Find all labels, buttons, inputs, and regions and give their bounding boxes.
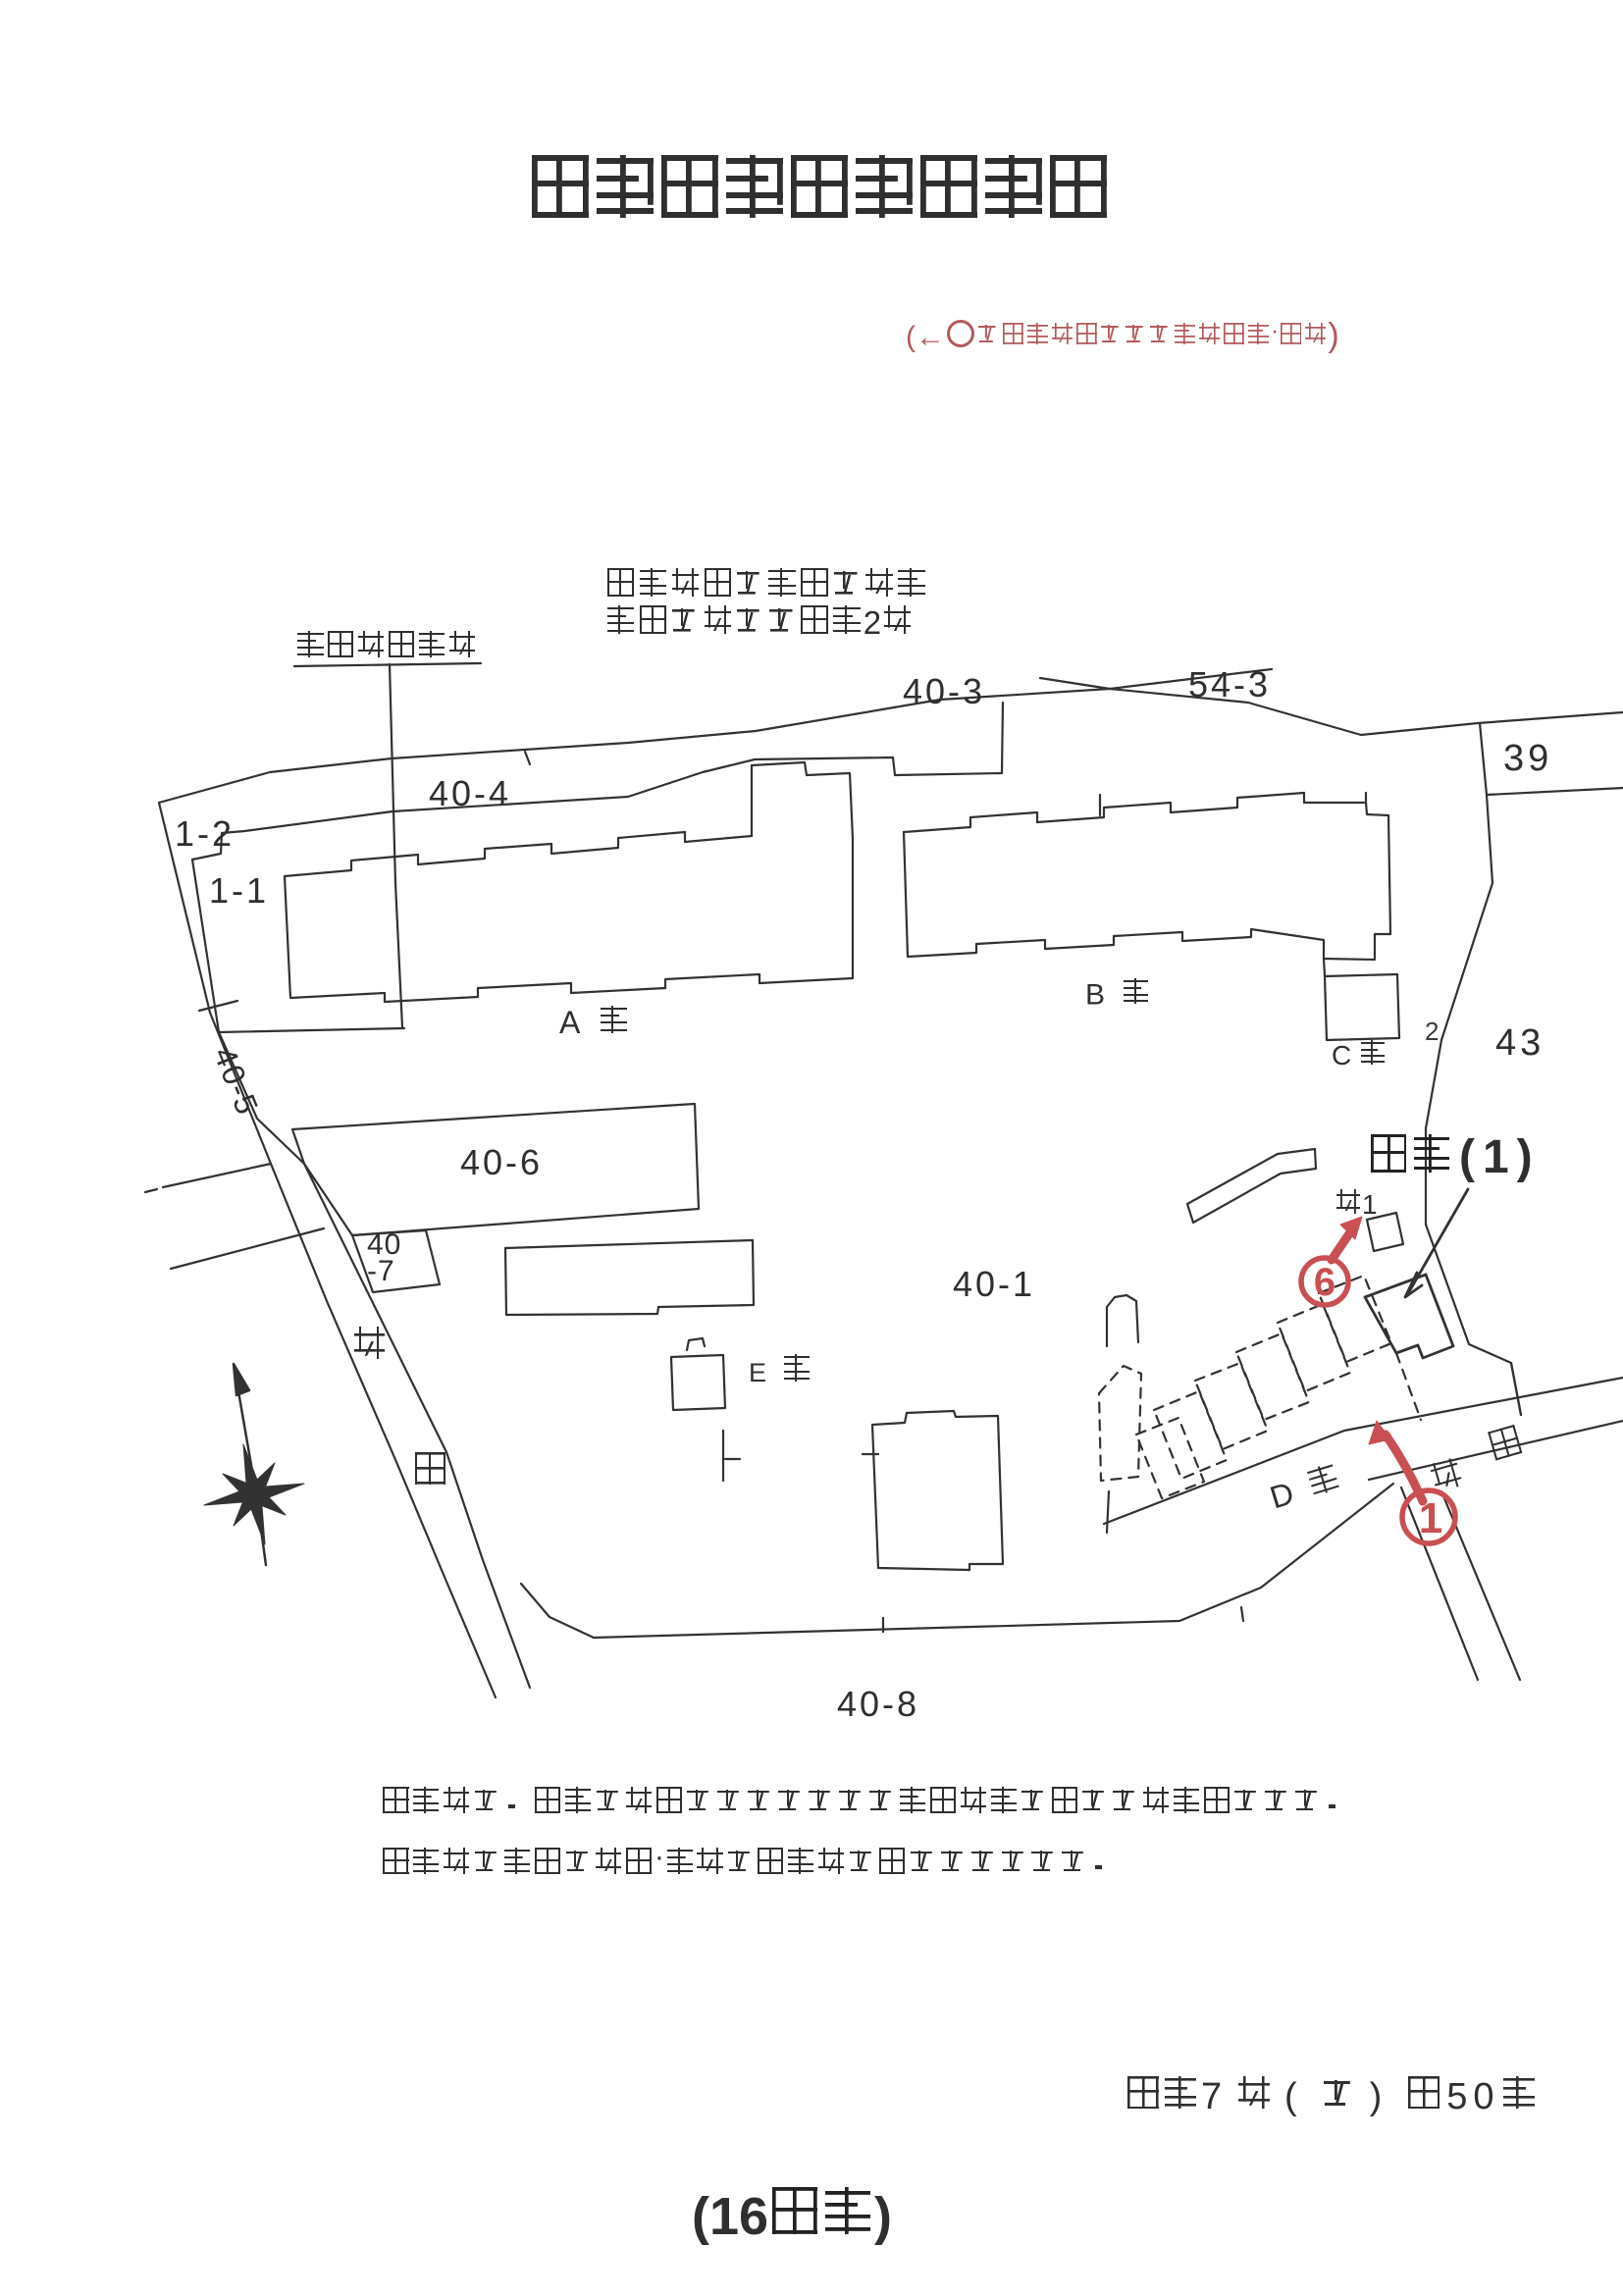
svg-text:2: 2 — [1425, 1017, 1439, 1046]
svg-text:6: 6 — [1314, 1261, 1335, 1304]
